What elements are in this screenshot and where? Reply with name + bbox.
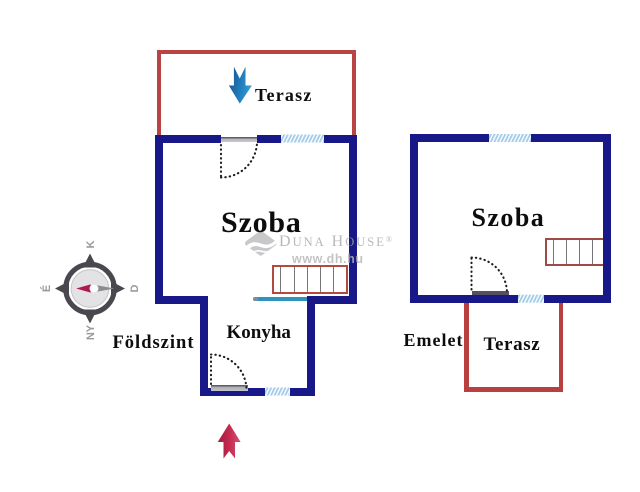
svg-text:K: K [85,240,97,248]
svg-text:É: É [40,285,53,292]
svg-text:NY: NY [85,324,97,340]
svg-text:D: D [129,284,141,292]
